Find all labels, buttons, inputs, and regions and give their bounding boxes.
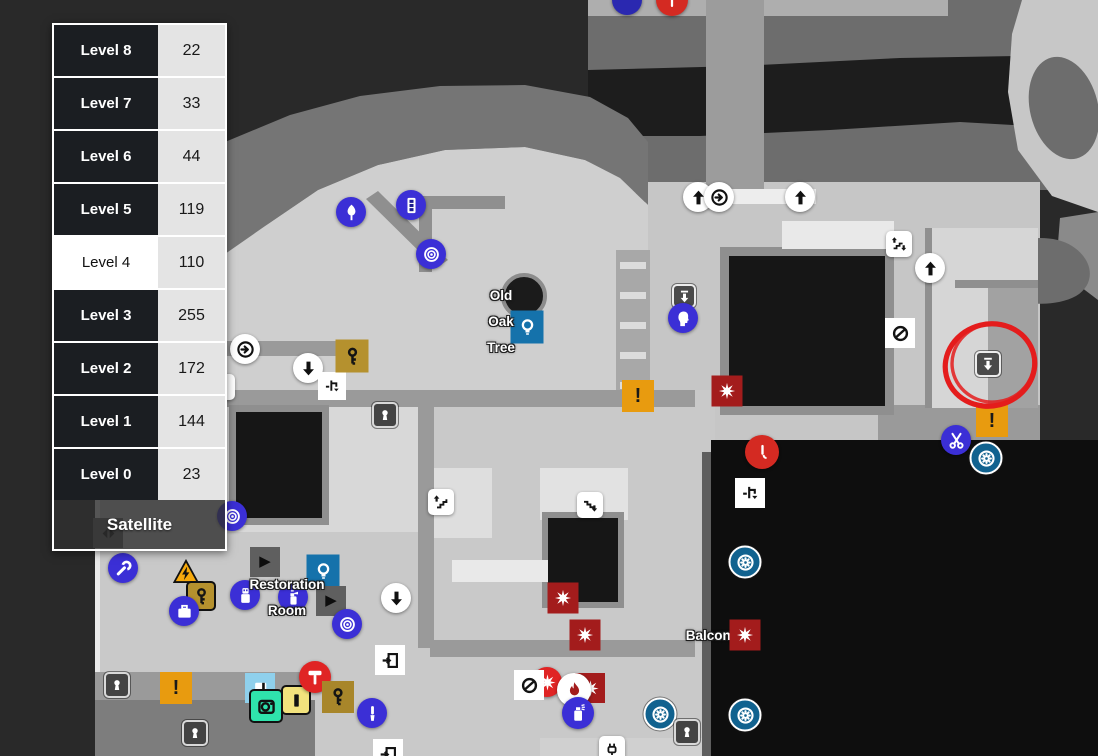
spray-can-marker[interactable]: [562, 697, 594, 729]
pipe-diamond[interactable]: [735, 478, 765, 508]
door-diamond[interactable]: [375, 645, 405, 675]
fan-marker[interactable]: [644, 698, 677, 731]
stairs-down-square[interactable]: [577, 492, 603, 518]
level-button-level-3[interactable]: Level 3255: [54, 290, 225, 343]
level-button-level-7[interactable]: Level 733: [54, 78, 225, 131]
red-tool-marker[interactable]: [745, 435, 779, 469]
wrench-marker[interactable]: [108, 553, 138, 583]
level-label: Level 1: [54, 396, 158, 447]
fan-marker[interactable]: [729, 699, 762, 732]
level-marker-count: 172: [158, 343, 225, 394]
tool-marker[interactable]: [357, 698, 387, 728]
level-button-level-5[interactable]: Level 5119: [54, 184, 225, 237]
plug-square[interactable]: [599, 736, 625, 756]
level-button-level-8[interactable]: Level 822: [54, 25, 225, 78]
no-entry-diamond[interactable]: [514, 670, 544, 700]
danger-diamond[interactable]: !: [976, 405, 1008, 437]
keyhole-square[interactable]: [104, 672, 130, 698]
key-diamond[interactable]: [322, 681, 354, 713]
level-button-level-4[interactable]: Level 4110: [54, 237, 225, 290]
hazard-star-diamond[interactable]: [548, 583, 579, 614]
stairs-up-square[interactable]: [428, 489, 454, 515]
level-label: Level 0: [54, 449, 158, 500]
level-button-level-1[interactable]: Level 1144: [54, 396, 225, 449]
hazard-star-diamond[interactable]: [712, 376, 743, 407]
hint-diamond[interactable]: [307, 555, 340, 588]
pipe-diamond[interactable]: [318, 372, 346, 400]
level-marker-count: 23: [158, 449, 225, 500]
annotated-down-square[interactable]: [975, 351, 1001, 377]
level-label: Level 8: [54, 25, 158, 76]
scissors-marker[interactable]: [941, 425, 971, 455]
extract-up-arrow[interactable]: [785, 182, 815, 212]
level-list: Level 822Level 733Level 644Level 5119Lev…: [54, 25, 225, 500]
level-label: Level 5: [54, 184, 158, 235]
level-button-level-2[interactable]: Level 2172: [54, 343, 225, 396]
level-marker-count: 144: [158, 396, 225, 447]
level-button-level-6[interactable]: Level 644: [54, 131, 225, 184]
extract-ring-arrow[interactable]: [704, 182, 734, 212]
hazard-star-diamond[interactable]: [570, 620, 601, 651]
level-selector-panel: Level 822Level 733Level 644Level 5119Lev…: [52, 23, 227, 551]
spray-marker[interactable]: [278, 582, 308, 612]
hint-diamond[interactable]: [511, 311, 544, 344]
danger-diamond[interactable]: !: [160, 672, 192, 704]
extract-up-arrow[interactable]: [915, 253, 945, 283]
usb-marker[interactable]: [230, 580, 260, 610]
level-label: Level 4: [54, 237, 158, 288]
camera-square[interactable]: [249, 689, 283, 723]
level-marker-count: 33: [158, 78, 225, 129]
keyhole-square[interactable]: [674, 719, 700, 745]
no-entry-diamond[interactable]: [885, 318, 915, 348]
fan-marker[interactable]: [970, 442, 1003, 475]
panel-marker[interactable]: [396, 190, 426, 220]
keyhole-square[interactable]: [372, 402, 398, 428]
map-viewport[interactable]: !▶▶!!OldOakTreeRestorationRoomBalcony Le…: [0, 0, 1098, 756]
level-marker-count: 22: [158, 25, 225, 76]
door-diamond[interactable]: [373, 739, 403, 756]
level-button-level-0[interactable]: Level 023: [54, 449, 225, 500]
level-label: Level 2: [54, 343, 158, 394]
level-label: Level 6: [54, 131, 158, 182]
key-diamond[interactable]: [336, 340, 369, 373]
level-marker-count: 255: [158, 290, 225, 341]
target-marker[interactable]: [416, 239, 446, 269]
extract-ring-arrow[interactable]: [230, 334, 260, 364]
keyhole-square[interactable]: [182, 720, 208, 746]
danger-diamond[interactable]: !: [622, 380, 654, 412]
level-marker-count: 119: [158, 184, 225, 235]
level-label: Level 7: [54, 78, 158, 129]
level-marker-count: 110: [158, 237, 225, 288]
play-diamond[interactable]: ▶: [250, 547, 280, 577]
briefcase-marker[interactable]: [169, 596, 199, 626]
bust-marker[interactable]: [668, 303, 698, 333]
lamp-marker[interactable]: [336, 197, 366, 227]
stairs-updown-square[interactable]: [886, 231, 912, 257]
fan-marker[interactable]: [729, 546, 762, 579]
target-marker[interactable]: [332, 609, 362, 639]
level-marker-count: 44: [158, 131, 225, 182]
level-label: Level 3: [54, 290, 158, 341]
hazard-star-diamond[interactable]: [730, 620, 761, 651]
extract-down-arrow[interactable]: [381, 583, 411, 613]
satellite-button[interactable]: Satellite: [54, 500, 225, 549]
